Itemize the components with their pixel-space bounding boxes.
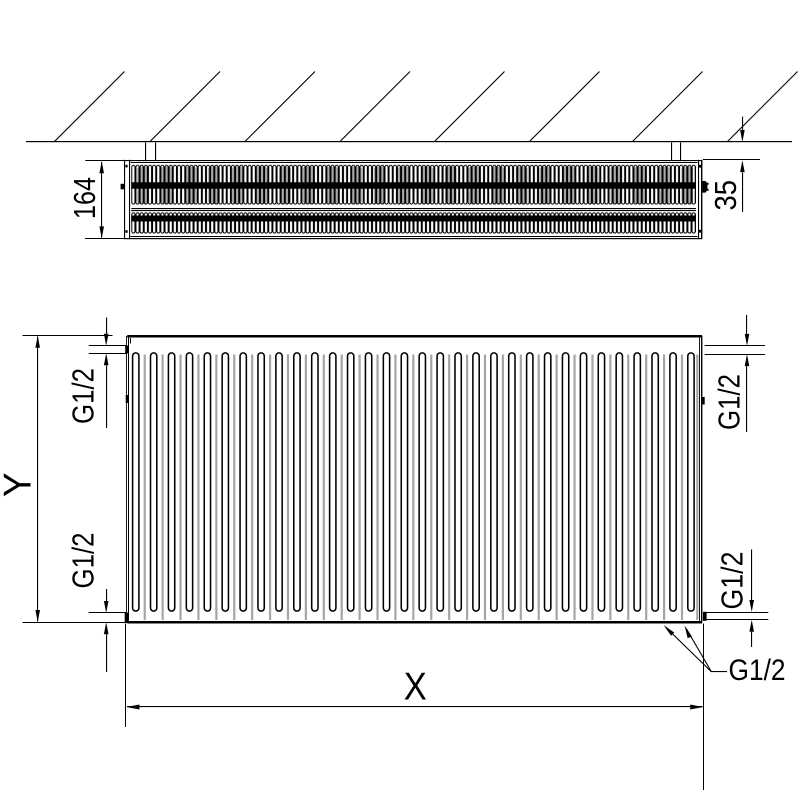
svg-text:Y: Y: [0, 473, 40, 498]
svg-text:35: 35: [708, 180, 743, 211]
svg-text:G1/2: G1/2: [715, 552, 750, 610]
svg-text:G1/2: G1/2: [729, 654, 786, 687]
svg-text:X: X: [404, 666, 427, 709]
svg-text:G1/2: G1/2: [712, 374, 747, 430]
svg-text:G1/2: G1/2: [66, 368, 101, 424]
svg-text:164: 164: [67, 177, 102, 219]
svg-text:G1/2: G1/2: [66, 533, 101, 589]
